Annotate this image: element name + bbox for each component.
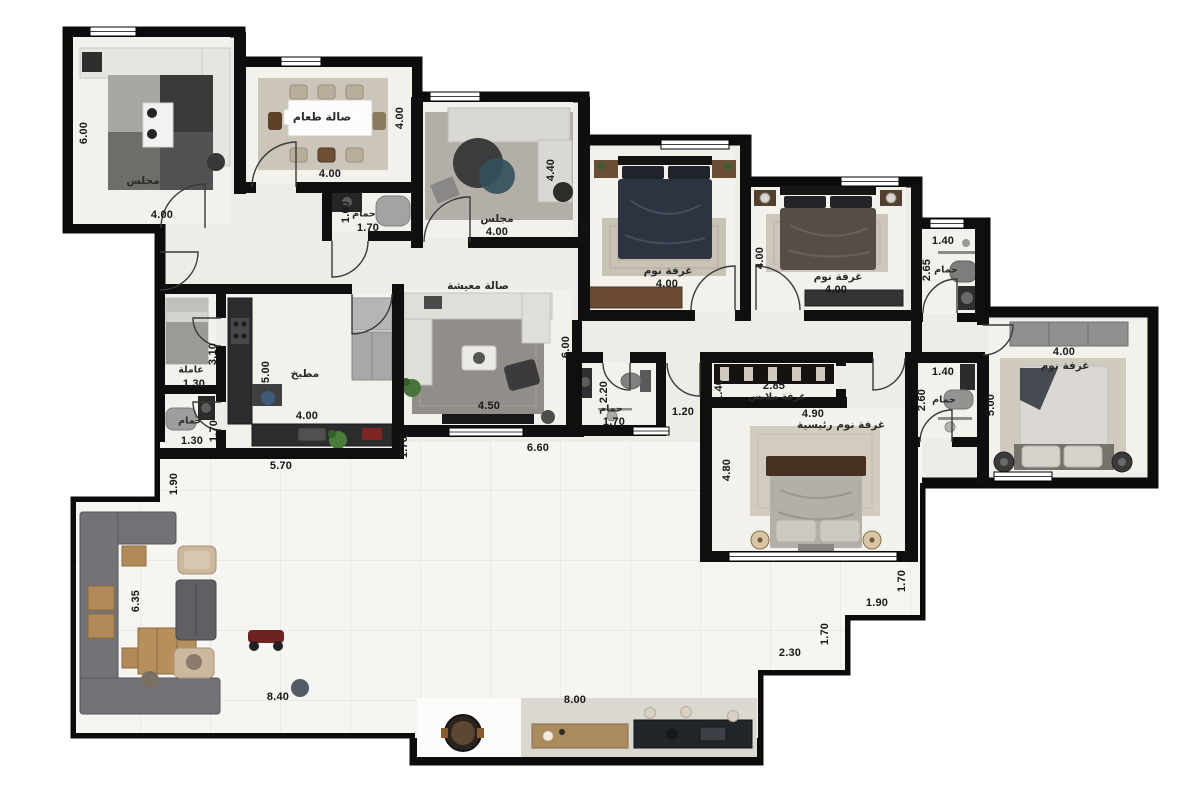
dim-majlis-top-w: 4.00 [151,209,173,221]
room-label-hall-bath: حمام [599,404,623,415]
dim-hall-bath-w: 1.70 [603,416,625,428]
dim-bath-r-w: 1.40 [932,366,954,378]
dim-kitchen-total: 5.70 [270,460,292,472]
room-label-bath-right: حمام [932,395,956,406]
dim-kitchen-w: 4.00 [296,410,318,422]
room-label-dining: صالة طعام [284,110,360,125]
dim-bedroom3-w: 4.00 [1053,346,1075,358]
dim-dressing-h: 1.40 [713,379,725,401]
room-label-dressing: غرفة ملابس [748,392,806,403]
dim-bedroom1-w: 4.00 [656,278,678,290]
dim-hall-bath-h: 2.20 [598,381,610,403]
dim-dressing-w: 2.85 [763,380,785,392]
dim-bath-tr-h: 2.65 [921,259,933,281]
dim-step2-h: 1.70 [819,623,831,645]
room-label-living: صالة معيشة [447,280,509,292]
dim-bedroom3-h: 5.00 [985,394,997,416]
dim-master-w: 4.90 [802,408,824,420]
dim-terrace-w: 8.00 [564,694,586,706]
dim-living-w: 4.50 [478,400,500,412]
room-label-bath-guest: حمام [352,209,376,220]
furniture-maid [166,298,208,364]
room-label-bedroom2: غرفة نوم [814,271,863,283]
dim-family-h: 6.35 [130,590,142,612]
dim-majlis-top-h: 6.00 [78,122,90,144]
dim-bedroom2-w: 4.00 [825,284,847,296]
dim-bath-tr-w: 1.40 [932,235,954,247]
room-label-majlis-top: مجلس [126,175,159,187]
floor-plan: مجلس صالة طعام حمام مجلس غرفة نوم غرفة ن… [0,0,1190,800]
room-label-bath-top-right: حمام [934,265,958,276]
room-label-kitchen: مطبخ [291,368,320,380]
dim-step1-h: 1.70 [896,570,908,592]
dim-maid-h: 3.10 [207,343,219,365]
furniture-bedroom3 [994,322,1132,472]
room-label-majlis-small: مجلس [480,213,513,225]
dim-dining-h: 4.00 [394,107,406,129]
room-label-bedroom3: غرفة نوم [1041,360,1090,372]
dim-hall-w: 6.60 [527,442,549,454]
dim-kitchen-h: 5.00 [260,361,272,383]
dim-left-pass: 1.90 [168,473,180,495]
dim-bath-guest-w: 1.70 [357,222,379,234]
dim-family-w: 8.40 [267,691,289,703]
room-label-maid-bath: حمام [178,416,202,427]
dim-majlis-small-h: 4.40 [545,159,557,181]
dim-bedroom2-h: 4.00 [754,247,766,269]
dim-living-h: 6.00 [560,336,572,358]
dim-step2-w: 2.30 [779,647,801,659]
dim-master-h: 4.80 [721,459,733,481]
dim-dining-w: 4.00 [319,168,341,180]
dim-bedroom1-h: 5.00 [579,220,591,242]
dim-step1-w: 1.90 [866,597,888,609]
room-label-maid: عاملة [178,365,204,376]
room-label-master: غرفة نوم رئيسية [797,419,885,431]
floor-plan-drawing [0,0,1190,800]
dim-maid-w: 1.30 [183,378,205,390]
dim-hall-side: 1.70 [398,436,410,458]
dim-bath-r-h: 2.60 [916,389,928,411]
dim-maid-bath-h: 1.70 [208,420,220,442]
room-label-bedroom1: غرفة نوم [644,265,693,277]
dim-bath-guest-h: 1.60 [340,201,352,223]
dim-maid-bath-w: 1.30 [181,435,203,447]
dim-majlis-small-w: 4.00 [486,226,508,238]
dim-corridor: 1.20 [672,406,694,418]
